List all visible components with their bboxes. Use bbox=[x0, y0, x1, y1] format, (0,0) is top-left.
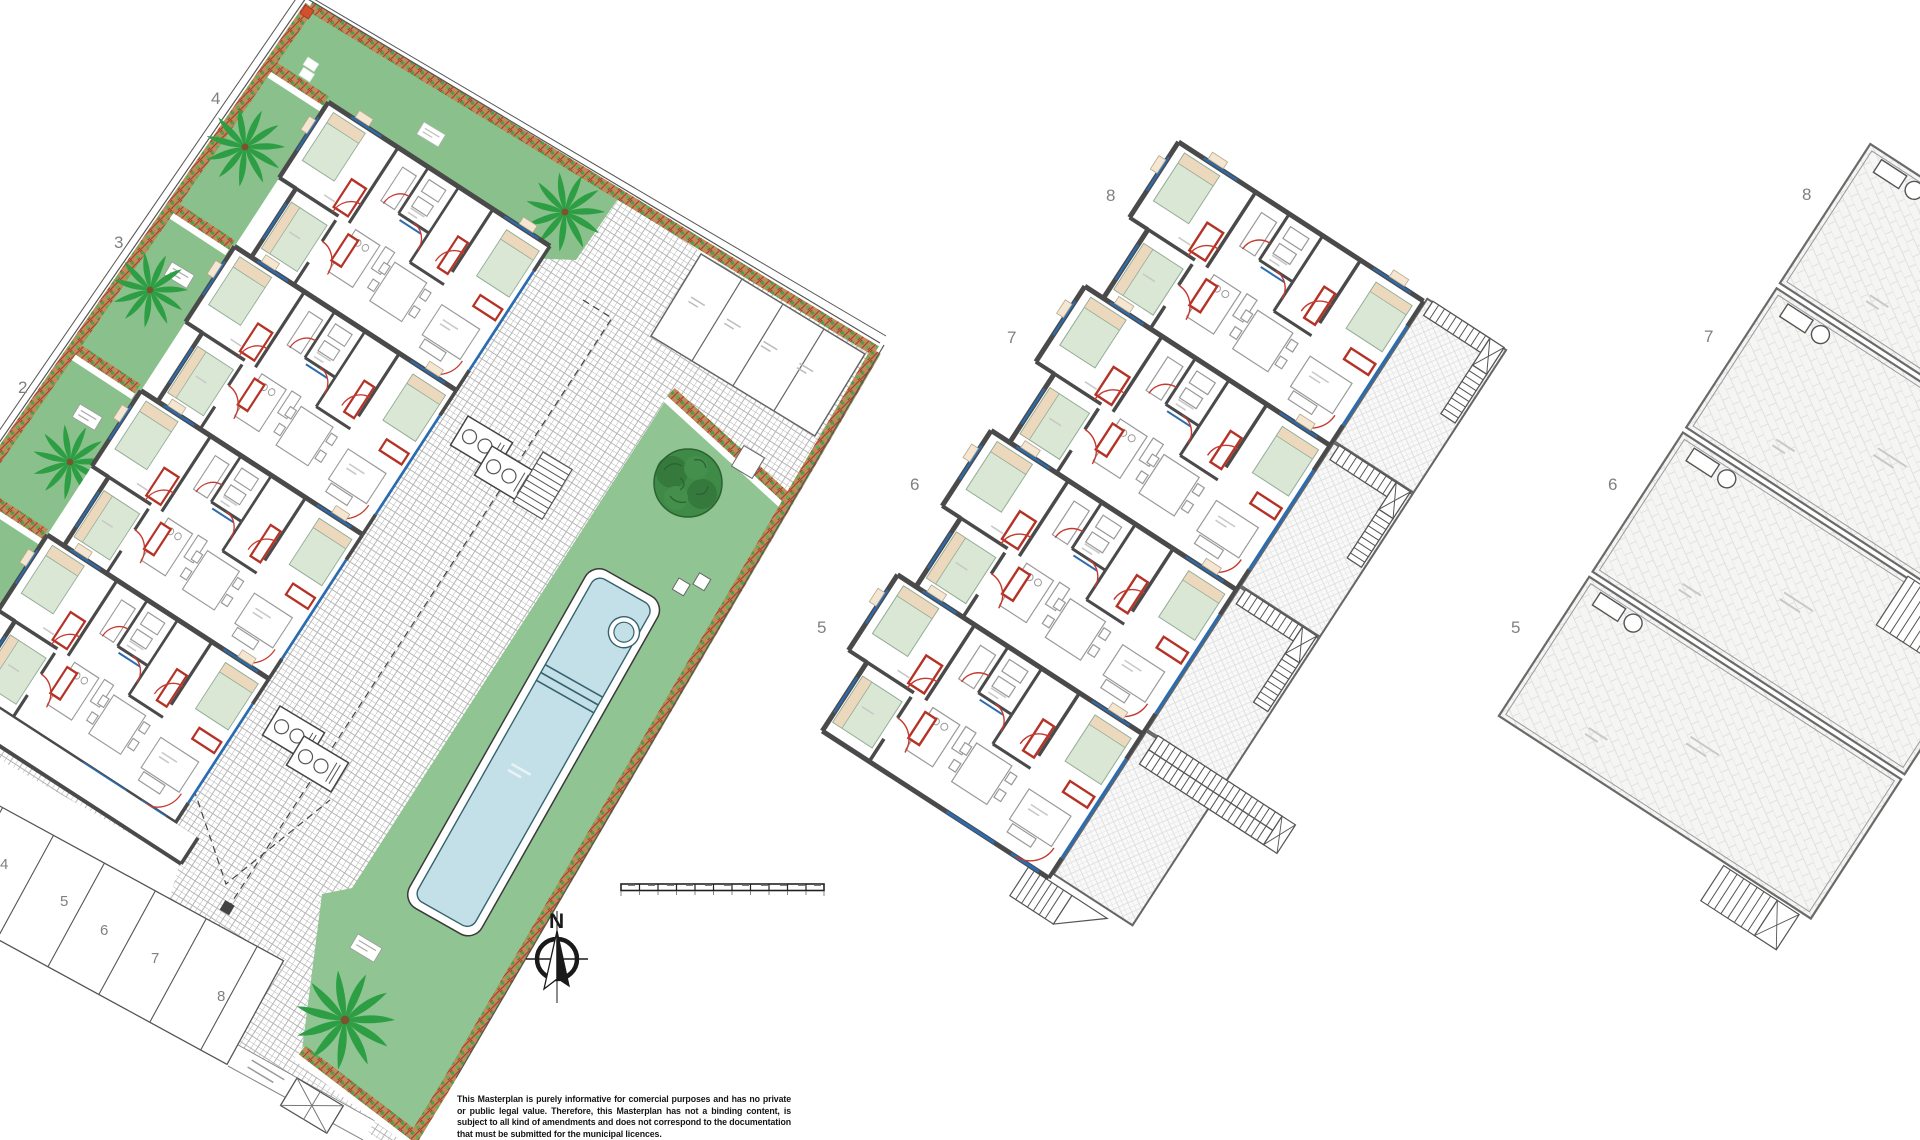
svg-text:6: 6 bbox=[100, 922, 108, 939]
svg-text:8: 8 bbox=[1106, 186, 1115, 205]
svg-text:5: 5 bbox=[60, 893, 68, 910]
svg-text:6: 6 bbox=[910, 475, 919, 494]
svg-text:8: 8 bbox=[217, 988, 225, 1005]
svg-text:2: 2 bbox=[18, 378, 27, 397]
svg-text:3: 3 bbox=[114, 233, 123, 252]
svg-text:4: 4 bbox=[211, 89, 220, 108]
svg-text:7: 7 bbox=[151, 950, 159, 967]
svg-text:4: 4 bbox=[0, 856, 8, 873]
svg-text:7: 7 bbox=[1704, 327, 1713, 346]
svg-text:5: 5 bbox=[817, 618, 826, 637]
svg-text:8: 8 bbox=[1802, 185, 1811, 204]
svg-text:5: 5 bbox=[1511, 618, 1520, 637]
svg-text:6: 6 bbox=[1608, 475, 1617, 494]
svg-text:7: 7 bbox=[1007, 328, 1016, 347]
